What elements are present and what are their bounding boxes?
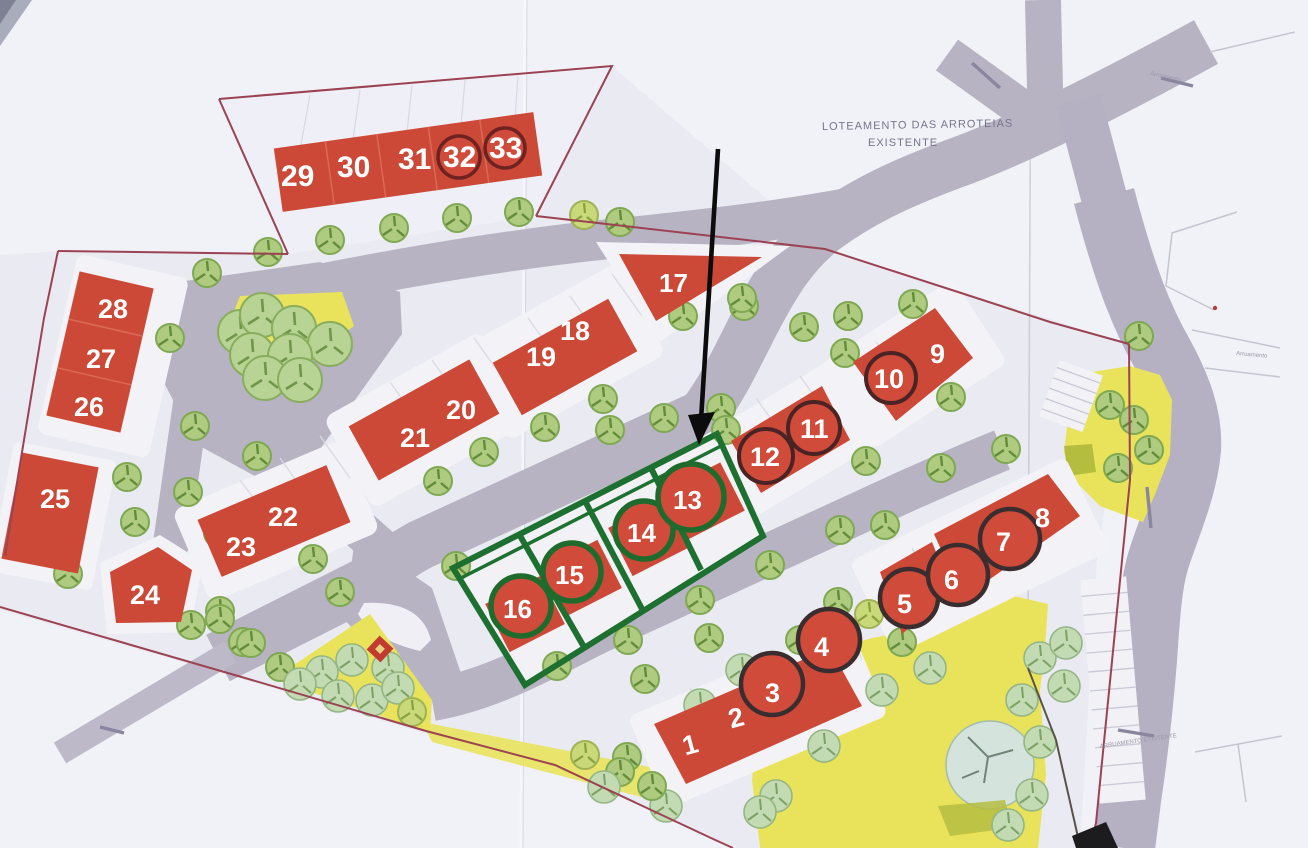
svg-text:24: 24: [130, 580, 160, 610]
svg-text:32: 32: [443, 141, 476, 174]
svg-text:30: 30: [337, 151, 370, 184]
svg-text:27: 27: [86, 344, 116, 374]
svg-text:16: 16: [503, 594, 532, 624]
svg-text:31: 31: [398, 143, 431, 176]
svg-text:29: 29: [281, 160, 314, 193]
svg-text:8: 8: [1035, 503, 1050, 533]
svg-text:3: 3: [765, 678, 780, 708]
svg-text:10: 10: [874, 364, 904, 394]
svg-text:6: 6: [944, 565, 959, 595]
svg-text:33: 33: [489, 132, 522, 165]
svg-text:4: 4: [814, 632, 829, 662]
svg-text:21: 21: [400, 423, 430, 453]
svg-text:EXISTENTE: EXISTENTE: [868, 137, 938, 149]
svg-text:5: 5: [897, 589, 912, 619]
svg-text:11: 11: [800, 414, 829, 444]
svg-text:15: 15: [555, 560, 584, 590]
svg-text:28: 28: [98, 294, 128, 324]
svg-text:18: 18: [560, 316, 590, 346]
svg-text:12: 12: [750, 442, 780, 472]
svg-text:23: 23: [226, 532, 256, 562]
svg-text:25: 25: [40, 484, 70, 514]
svg-text:7: 7: [996, 527, 1011, 557]
svg-text:26: 26: [74, 392, 104, 422]
svg-text:20: 20: [446, 395, 476, 425]
svg-text:9: 9: [930, 339, 945, 369]
svg-text:17: 17: [659, 268, 688, 298]
svg-text:22: 22: [268, 502, 298, 532]
svg-text:14: 14: [627, 518, 656, 548]
svg-text:19: 19: [526, 342, 556, 372]
svg-text:13: 13: [673, 485, 702, 515]
